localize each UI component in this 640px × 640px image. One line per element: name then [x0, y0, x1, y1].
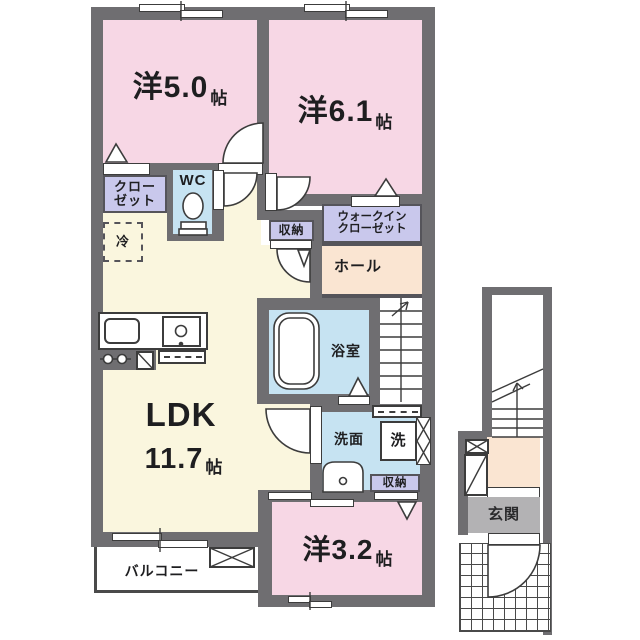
washer-text: 洗 — [390, 433, 406, 449]
storage-low-door-opening — [374, 492, 418, 500]
bedroom2-window-a — [304, 4, 350, 12]
washroom-label: 洗面 — [324, 430, 374, 448]
ldk-unit: 帖 — [205, 459, 223, 477]
bedroom1-window-a — [139, 4, 185, 12]
corridor — [224, 175, 257, 298]
ldk-size-label: 11.7帖 — [121, 441, 247, 477]
washer-label: 洗 — [380, 428, 417, 454]
closet-line2: ゼット — [114, 194, 156, 208]
closet-line1: クロー — [114, 180, 156, 194]
storage-mid-label: 収納 — [269, 222, 314, 239]
bedroom3-window-b — [309, 601, 332, 608]
bedroom3-label: 洋3.2帖 — [278, 531, 418, 569]
bedroom1-label: 洋5.0帖 — [108, 68, 253, 108]
stairs-main — [380, 298, 422, 402]
balcony-window-a — [112, 533, 162, 541]
entry-meter-box — [465, 439, 489, 454]
sliding-door-half-b — [310, 499, 354, 507]
washer-shelf — [372, 405, 422, 418]
bath-text: 浴室 — [331, 344, 361, 359]
hall-connector — [257, 245, 310, 298]
entry-wall-top — [482, 287, 552, 295]
ldk-name: LDK — [146, 398, 217, 433]
wall-stairs-left — [369, 298, 380, 404]
bedroom1-door-opening — [218, 163, 263, 175]
wic-line1: ウォークイン — [338, 211, 407, 223]
floor-plan: 洋5.0帖 洋6.1帖 クロー ゼット WC 冷 収納 ウォークイン クローゼッ… — [0, 0, 640, 640]
washroom-entry — [257, 404, 310, 502]
bedroom2-door-leaf — [265, 173, 277, 211]
bedroom1-window-b — [180, 10, 223, 18]
storage-mid-text: 収納 — [278, 224, 304, 237]
bedroom3-window-a — [288, 596, 311, 603]
storage-low-text: 収納 — [383, 477, 408, 489]
balcony-window-b — [158, 540, 208, 548]
entrance-porch-tiles — [459, 543, 551, 632]
entrance-label: 玄関 — [472, 506, 536, 524]
balcony-label: バルコニー — [110, 562, 214, 580]
fridge-label: 冷 — [104, 228, 142, 256]
kitchen-stove — [162, 316, 201, 347]
entry-wall-left-upper — [482, 287, 492, 439]
bedroom2-unit: 帖 — [375, 114, 393, 132]
front-door-leaf — [488, 533, 540, 545]
ldk-size: 11.7 — [145, 444, 204, 474]
bedroom3-unit: 帖 — [375, 551, 393, 569]
bedroom2-name: 洋6.1 — [298, 96, 374, 128]
balcony-ac-unit — [209, 547, 255, 568]
entrance-text: 玄関 — [488, 507, 520, 523]
wc-label: WC — [174, 172, 212, 190]
washroom-door-leaf — [310, 406, 322, 464]
storage-mid-door-leaf — [270, 240, 312, 249]
wic-line2: クローゼット — [338, 223, 407, 235]
hall-label: ホール — [318, 257, 398, 277]
storage-low-label: 収納 — [370, 476, 420, 490]
stairs-entry — [492, 295, 543, 437]
closet-door-opening — [103, 163, 150, 175]
entry-upper-hall — [487, 437, 540, 487]
louver-window — [416, 417, 431, 465]
bath-label: 浴室 — [322, 342, 370, 360]
wall-bedroom3-bottom — [258, 595, 435, 607]
ldk-label: LDK — [121, 396, 241, 434]
bedroom2-window-b — [345, 10, 388, 18]
bath-door-opening — [338, 396, 370, 405]
kitchen-counter-dashes — [164, 356, 202, 358]
kitchen-counter-dashed — [158, 350, 206, 364]
washer-shelf-dashes — [378, 411, 418, 413]
bedroom2-label: 洋6.1帖 — [273, 92, 418, 132]
hall-text: ホール — [334, 259, 382, 275]
balcony-text: バルコニー — [125, 564, 200, 579]
closet-label: クロー ゼット — [104, 178, 166, 210]
bedroom1-name: 洋5.0 — [133, 72, 209, 104]
kitchen-corner-unit — [136, 351, 154, 370]
wall-right — [422, 7, 435, 607]
shoe-cabinet — [464, 454, 488, 496]
kitchen-sink — [104, 318, 140, 344]
fridge-text: 冷 — [116, 235, 130, 249]
wic-label: ウォークイン クローゼット — [324, 206, 420, 240]
wc-text: WC — [180, 173, 207, 189]
wc-door — [213, 170, 224, 210]
sliding-door-half-a — [268, 492, 312, 500]
wall-bedroom3-left — [258, 492, 272, 607]
bedroom1-unit: 帖 — [210, 90, 228, 108]
bedroom3-name: 洋3.2 — [303, 535, 374, 564]
washroom-text: 洗面 — [334, 432, 364, 447]
wall-left — [91, 7, 103, 547]
